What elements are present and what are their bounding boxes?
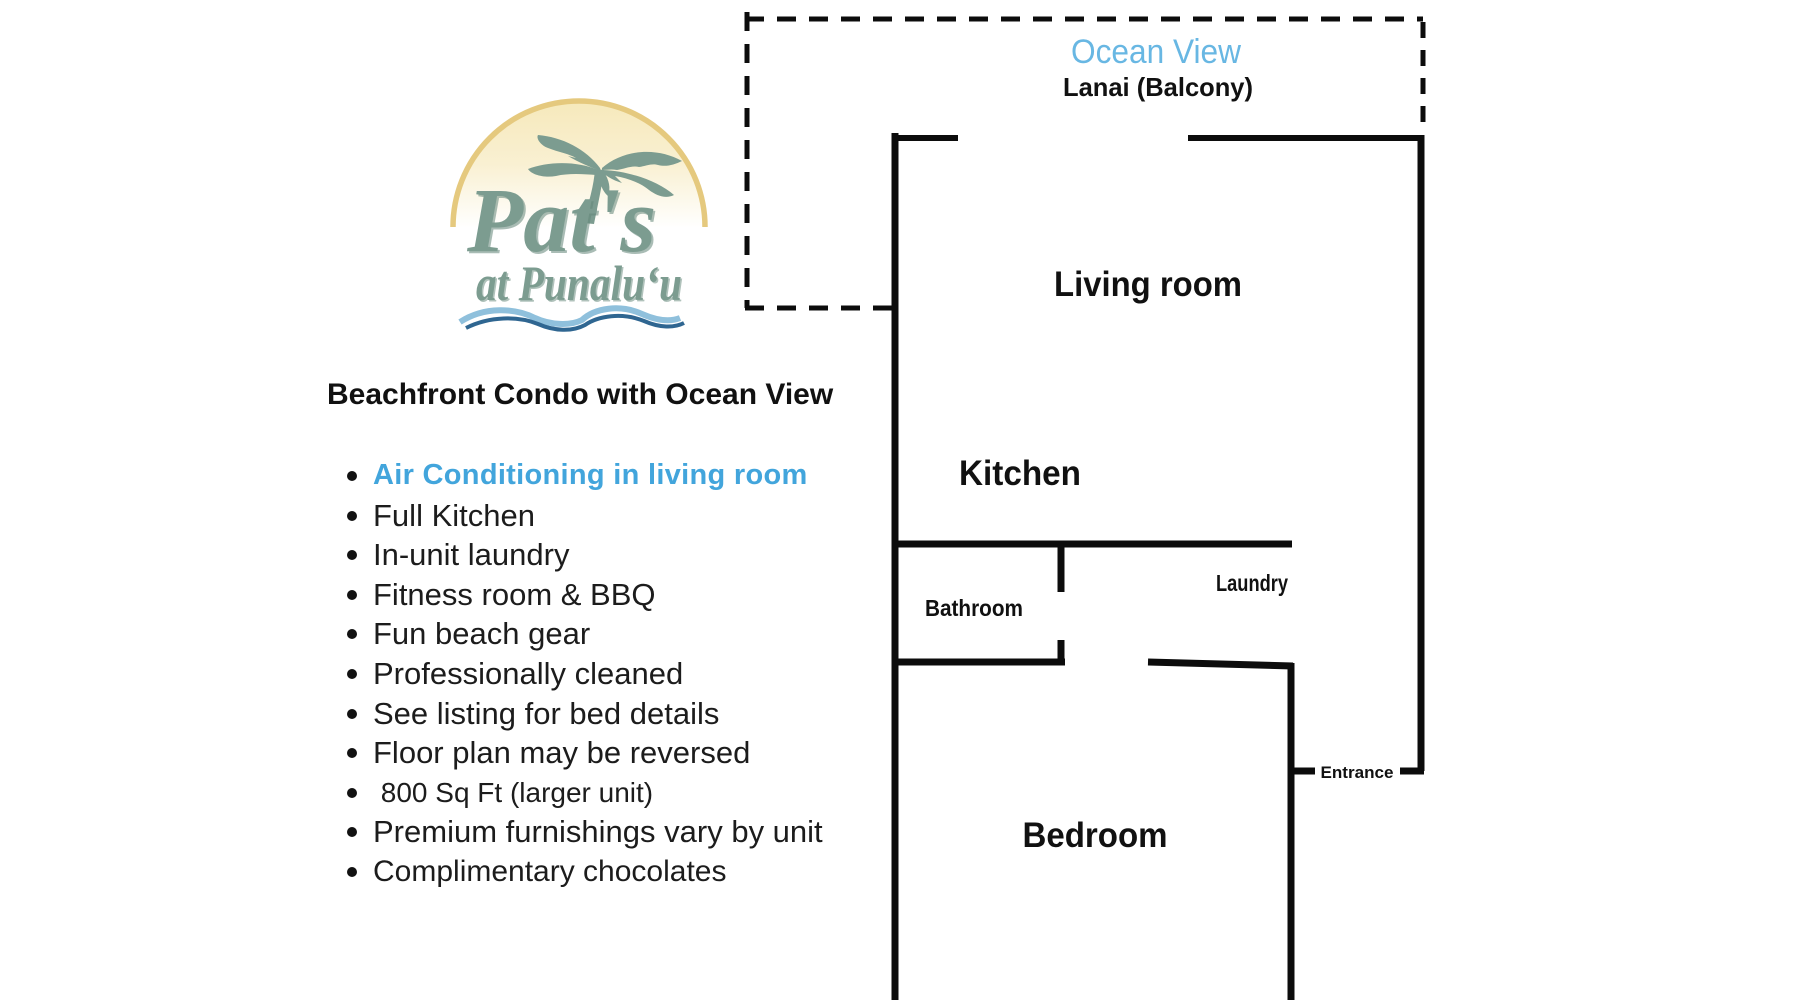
svg-text:Lanai (Balcony): Lanai (Balcony) (1063, 72, 1253, 102)
svg-text:Living room: Living room (1054, 265, 1242, 304)
svg-text:Entrance: Entrance (1321, 763, 1394, 782)
svg-text:Bathroom: Bathroom (925, 595, 1023, 621)
svg-text:Bedroom: Bedroom (1023, 816, 1168, 855)
svg-text:Kitchen: Kitchen (959, 454, 1081, 493)
svg-text:Laundry: Laundry (1216, 570, 1288, 596)
svg-text:Ocean View: Ocean View (1071, 33, 1241, 71)
